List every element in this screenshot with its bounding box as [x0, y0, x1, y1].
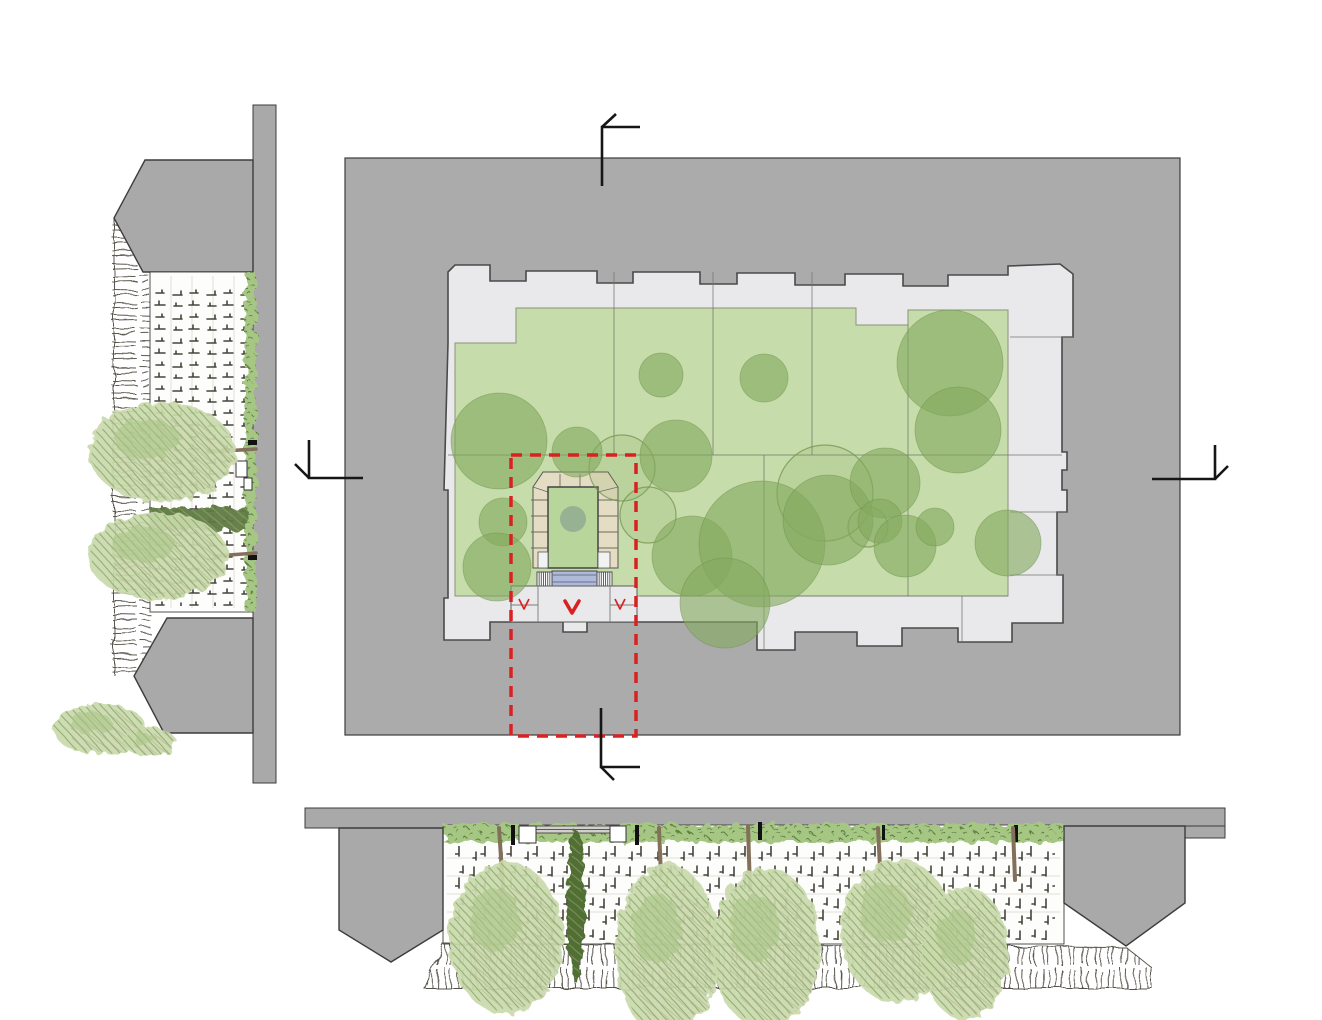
datum-tick [758, 822, 762, 840]
datum-tick [511, 825, 515, 845]
cypress-hedge [567, 830, 585, 982]
building-mass-section [1064, 826, 1185, 946]
tree-canopy-plan [639, 353, 683, 397]
entrance-ramp [552, 571, 597, 586]
datum-tick [248, 440, 257, 445]
datum-tick [635, 825, 639, 845]
left-section-elevation [54, 105, 276, 783]
tree-canopy-plan [680, 558, 770, 648]
site-plan [295, 114, 1228, 780]
tree-canopy-plan [915, 387, 1001, 473]
elevation-opening [244, 478, 252, 490]
bottom-section-elevation [305, 808, 1225, 1020]
elevation-opening [236, 461, 247, 477]
tree-canopy-plan [552, 427, 602, 477]
datum-tick [882, 825, 885, 840]
tree-canopy [88, 512, 228, 600]
elevation-opening [519, 826, 536, 843]
building-mass-section [339, 828, 443, 962]
tree-trunk [1013, 828, 1015, 880]
tree-canopy-plan [916, 508, 954, 546]
tree-canopy-plan [975, 510, 1041, 576]
bush-canopy [124, 728, 176, 756]
tree-canopy-plan [463, 533, 531, 601]
datum-tick [248, 555, 257, 560]
tree-trunk [878, 828, 880, 868]
tree-canopy [921, 887, 1009, 1019]
tree-canopy-plan [451, 393, 547, 489]
tree-canopy-plan [740, 354, 788, 402]
entrance-tree [560, 506, 586, 532]
tree-canopy [449, 862, 563, 1014]
tree-canopy-plan [640, 420, 712, 492]
architectural-drawing-sheet [0, 0, 1322, 1020]
site-plan-drawing [0, 0, 1322, 1020]
elevation-opening [610, 826, 626, 842]
tree-canopy [89, 402, 235, 502]
